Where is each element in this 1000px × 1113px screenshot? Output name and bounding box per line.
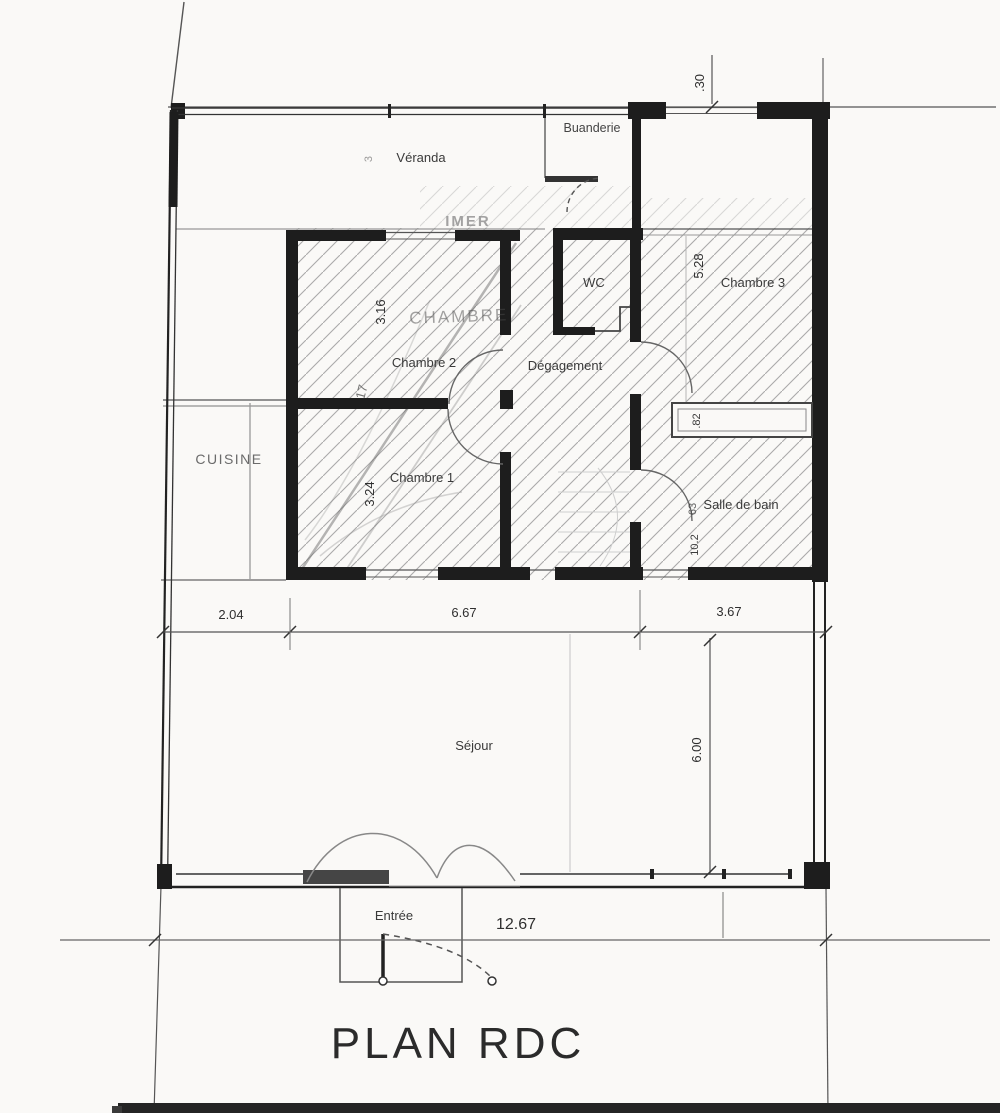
- room-label-entree: Entrée: [375, 908, 413, 923]
- dim-label-3-67: 3.67: [716, 604, 741, 619]
- scan-edge: [112, 1103, 1000, 1113]
- room-label-chambre2: Chambre 2: [392, 355, 456, 370]
- door-swing-point: [488, 977, 496, 985]
- dim-label-6-00: 6.00: [689, 737, 704, 762]
- dim-label-63: 63: [687, 503, 699, 515]
- dim-label-6-67: 6.67: [451, 605, 476, 620]
- plan-title: PLAN RDC: [331, 1019, 586, 1068]
- room-label-chambre1: Chambre 1: [390, 470, 454, 485]
- dim-label-82: .82: [691, 413, 703, 428]
- room-label-wc: WC: [583, 275, 605, 290]
- room-label-chambre-ghost: CHAMBRE: [409, 305, 509, 327]
- hatched-area: [288, 186, 812, 580]
- faded-stamp-text: IMER: [445, 213, 491, 230]
- dim-label-5-28: 5.28: [691, 253, 706, 278]
- room-label-veranda: Véranda: [396, 150, 446, 165]
- room-label-salle-de-bain: Salle de bain: [703, 497, 778, 512]
- room-label-cuisine: CUISINE: [195, 451, 262, 467]
- dim-label-12-67: 12.67: [496, 916, 536, 933]
- room-label-chambre3: Chambre 3: [721, 275, 785, 290]
- floor-plan-drawing: Véranda Buanderie WC CHAMBRE Chambre 2 D…: [0, 0, 1000, 1113]
- room-label-sejour: Séjour: [455, 738, 493, 753]
- dim-label-3: 3: [363, 156, 375, 162]
- dim-label-30: .30: [692, 74, 707, 92]
- dim-label-3-16: 3.16: [373, 299, 388, 324]
- dim-label-10-2: 10.2: [689, 534, 701, 555]
- door-hinge-point: [379, 977, 387, 985]
- dim-label-2-04: 2.04: [218, 607, 243, 622]
- room-label-degagement: Dégagement: [528, 358, 603, 373]
- room-label-buanderie: Buanderie: [564, 121, 621, 135]
- scanned-floor-plan: Véranda Buanderie WC CHAMBRE Chambre 2 D…: [0, 0, 1000, 1113]
- dim-label-3-24: 3.24: [362, 481, 377, 506]
